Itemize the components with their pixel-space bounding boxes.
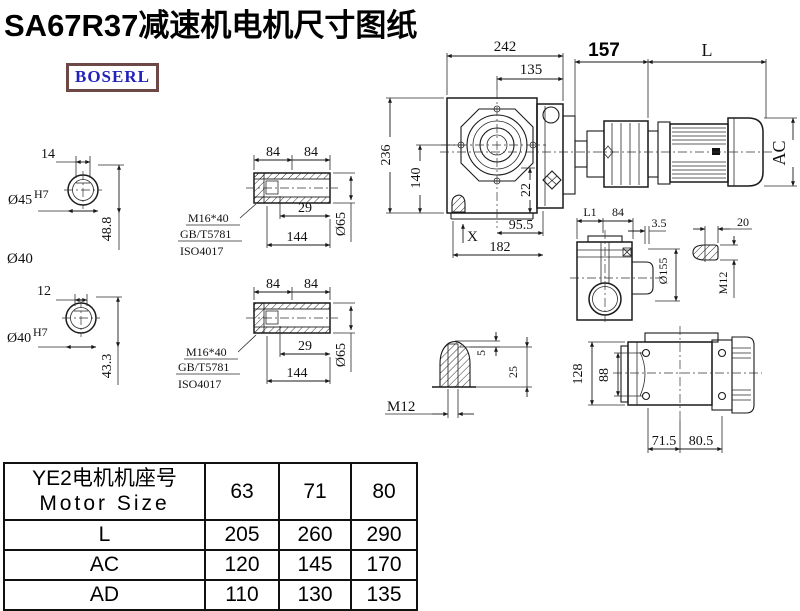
dim-sleeve2-segments: 84 84 (254, 277, 330, 300)
detail-x-marker-label: X (467, 229, 478, 245)
drawing-canvas: SA67R37减速机电机尺寸图纸 BOSERL 14 (0, 0, 800, 609)
table-row-AC: AC 120 145 170 (4, 550, 417, 580)
dim-shaft2-keyway-label: 12 (37, 284, 51, 299)
value-L-71: 260 (279, 520, 351, 550)
motor-size-table: YE2电机机座号 Motor Size 63 71 80 L 205 260 2… (3, 462, 418, 611)
main-assembly-view: 242 135 157 L (379, 39, 797, 258)
dim-shaft1-depth-label: 48.8 (100, 217, 115, 242)
dim-shaft1-fit-label: H7 (34, 187, 49, 201)
dim-sleeve1-segments: 84 84 (254, 145, 330, 170)
table-header-en: Motor Size (5, 492, 204, 516)
dim-main-center-offset: 95.5 (497, 211, 543, 236)
dim-main-base-offset-label: 22 (519, 183, 534, 197)
dim-main-base-width-label: 182 (490, 240, 511, 255)
gearbox-bottom-view: 128 88 71.5 80.5 (571, 326, 762, 453)
dim-main-adapter-len: 157 (575, 40, 648, 138)
dim-bottom-bolt-span-label: 88 (597, 368, 612, 382)
flange-hole (543, 107, 559, 123)
dim-side-lip: 3.5 (628, 216, 667, 244)
dim-stud-length: 20 (693, 215, 752, 243)
note-sleeve2-bolt: M16*40 GB/T5781 ISO4017 (176, 335, 256, 391)
dim-sleeve1-inset-label: 29 (298, 201, 312, 216)
dim-sleeve1-seg1-label: 84 (266, 145, 280, 160)
value-AC-71: 145 (279, 550, 351, 580)
value-AD-80: 135 (351, 580, 417, 610)
dim-bottom-bolt-span: 88 (597, 353, 642, 396)
dim-detailx-thread-label: M12 (387, 399, 415, 415)
dim-side-seg2-label: 84 (612, 205, 624, 219)
dim-main-total-width: 242 (447, 39, 563, 101)
dim-sleeve2-dia-label: Ø65 (334, 343, 349, 367)
dim-main-center-to-face-label: 135 (520, 62, 543, 78)
value-AC-63: 120 (205, 550, 279, 580)
motor-nameplate (712, 148, 720, 155)
dim-shaft1-keyway-label: 14 (41, 147, 55, 162)
dim-main-center-offset-label: 95.5 (509, 218, 534, 233)
dim-bottom-right-label: 80.5 (689, 434, 714, 449)
table-row-L: L 205 260 290 (4, 520, 417, 550)
note-sleeve2-std1-label: GB/T5781 (178, 360, 229, 374)
dim-sleeve1-length-label: 144 (287, 230, 308, 245)
row-label-AC: AC (4, 550, 205, 580)
row-label-AD: AD (4, 580, 205, 610)
dim-main-adapter-len-label: 157 (588, 40, 620, 61)
dim-sleeve1-dia-label: Ø65 (334, 212, 349, 236)
value-AD-71: 130 (279, 580, 351, 610)
dim-main-total-height-label: 236 (379, 145, 394, 166)
note-sleeve1-std1-label: GB/T5781 (180, 227, 231, 241)
dim-main-motor-len: L (648, 40, 766, 118)
value-L-80: 290 (351, 520, 417, 550)
table-col-80: 80 (351, 463, 417, 520)
row-label-L: L (4, 520, 205, 550)
gearbox-side-view: L1 84 3.5 Ø155 (570, 205, 680, 322)
dim-shaft1-depth: 48.8 (98, 165, 124, 250)
note-sleeve1-bolt: M16*40 GB/T5781 ISO4017 (178, 204, 256, 258)
detail-x-marker: X (463, 224, 478, 245)
dim-shaft1-bore-label: Ø45 (8, 193, 32, 208)
table-col-63: 63 (205, 463, 279, 520)
dim-main-total-height: 236 (379, 98, 444, 213)
note-sleeve1-std2-label: ISO4017 (180, 244, 223, 258)
label-shaft1-outer: Ø40 (7, 251, 33, 267)
dim-stud-length-label: 20 (737, 215, 749, 229)
dim-stud-thread: M12 (716, 236, 738, 298)
bottom-fins (732, 348, 751, 400)
table-header-row: YE2电机机座号 Motor Size 63 71 80 (4, 463, 417, 520)
note-sleeve1-bolt-label: M16*40 (188, 211, 229, 225)
dim-sleeve2-length-label: 144 (287, 366, 308, 381)
dim-bottom-left-label: 71.5 (652, 434, 677, 449)
dim-sleeve2-inset-label: 29 (298, 339, 312, 354)
motor-fins-top (672, 128, 726, 144)
dim-sleeve1-seg2-label: 84 (304, 145, 318, 160)
dim-main-motor-dia-label: AC (769, 140, 789, 165)
value-L-63: 205 (205, 520, 279, 550)
dim-shaft1-bore: Ø45 H7 (8, 187, 98, 211)
table-header-cell: YE2电机机座号 Motor Size (4, 463, 205, 520)
motor-fins-bottom (672, 162, 726, 178)
value-AD-63: 110 (205, 580, 279, 610)
dim-sleeve2-dia: Ø65 (333, 303, 355, 372)
stud-detail-view: 20 M12 (693, 215, 752, 298)
dim-main-total-width-label: 242 (494, 39, 517, 55)
dim-bottom-height-label: 128 (571, 364, 586, 385)
hollow-shaft-view-1: 84 84 29 144 Ø65 (178, 145, 355, 258)
dim-detailx-depth: 25 (470, 337, 532, 397)
value-AC-80: 170 (351, 550, 417, 580)
hollow-shaft-view-2: 84 84 29 144 Ø65 (176, 277, 355, 391)
dim-sleeve2-seg1-label: 84 (266, 277, 280, 292)
dim-detailx-depth-label: 25 (506, 366, 520, 378)
shaft-section-40-view: 12 Ø40 H7 43.3 (7, 284, 122, 385)
dim-stud-thread-label: M12 (716, 272, 730, 295)
note-sleeve2-std2-label: ISO4017 (178, 377, 221, 391)
dim-shaft2-depth: 43.3 (96, 297, 122, 385)
dim-main-motor-len-label: L (702, 40, 713, 60)
dim-side-flange-dia-label: Ø155 (656, 258, 670, 285)
table-header-cn: YE2电机机座号 (5, 467, 204, 491)
dim-side-seg1-label: L1 (583, 205, 596, 219)
dim-detailx-tip-label: 5 (474, 350, 488, 356)
table-row-AD: AD 110 130 135 (4, 580, 417, 610)
shaft-section-45-view: 14 48.8 Ø45 H7 Ø40 (7, 147, 124, 267)
dim-main-center-height-label: 140 (409, 168, 424, 189)
dim-sleeve2-seg2-label: 84 (304, 277, 318, 292)
dim-bottom-offsets: 71.5 80.5 (648, 408, 722, 453)
dim-side-lip-label: 3.5 (652, 216, 667, 230)
dim-shaft2-bore-label: Ø40 (7, 331, 31, 346)
dim-shaft2-fit-label: H7 (33, 325, 48, 339)
table-col-71: 71 (279, 463, 351, 520)
dim-detailx-thread: M12 (385, 389, 474, 418)
dim-shaft2-depth-label: 43.3 (100, 354, 115, 379)
dim-main-center-to-face: 135 (497, 62, 563, 90)
drain-plug (452, 195, 465, 212)
detail-x-view: 5 25 M12 (385, 332, 532, 418)
note-sleeve2-bolt-label: M16*40 (186, 345, 227, 359)
dim-main-motor-dia: AC (764, 118, 797, 186)
dim-sleeve1-dia: Ø65 (333, 173, 355, 242)
